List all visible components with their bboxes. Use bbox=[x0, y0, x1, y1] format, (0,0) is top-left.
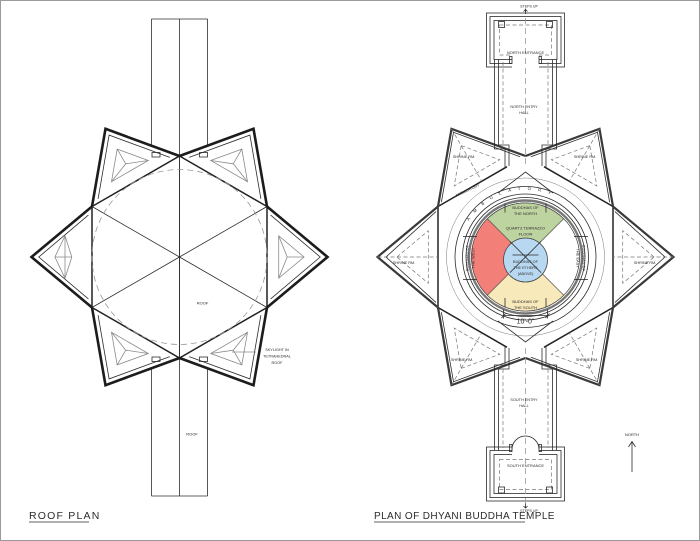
svg-text:STEPS UP: STEPS UP bbox=[520, 5, 538, 9]
buddhas-east-line2: THE EAST bbox=[576, 248, 581, 268]
buddhas-south-line2: THE SOUTH bbox=[514, 305, 537, 310]
floor-label-line2: FLOOR bbox=[519, 232, 533, 237]
south-entry-hall-line1: SOUTH ENTRY bbox=[510, 398, 538, 402]
skylight-note-line2: TETRAHEDRAL bbox=[263, 355, 291, 359]
dimension-text: 10'-0" bbox=[517, 319, 535, 326]
buddhas-ethers-line2: THE ETHERS bbox=[513, 266, 538, 270]
svg-text:ROOF PLAN: ROOF PLAN bbox=[29, 510, 100, 522]
svg-text:PLAN OF DHYANI BUDDHA TEMPLE: PLAN OF DHYANI BUDDHA TEMPLE bbox=[374, 511, 555, 522]
north-entry-hall-line2: HALL bbox=[519, 111, 529, 115]
north-arrow-label: NORTH bbox=[625, 432, 639, 437]
south-entrance-label: SOUTH ENTRANCE bbox=[507, 463, 544, 468]
skylight-note-line3: ROOF bbox=[272, 361, 284, 365]
shrine-label-se: SHRINE RM. bbox=[576, 358, 598, 362]
south-entry-hall-line2: HALL bbox=[519, 404, 529, 408]
skylight-note-line1: SKYLIGHT IN bbox=[265, 348, 289, 352]
shrine-label-ne: SHRINE RM. bbox=[574, 155, 596, 159]
architectural-drawing: ROOF ROOF SKYLIGHT IN TETRAHEDRAL ROOF R… bbox=[0, 0, 700, 541]
buddhas-north-line2: THE NORTH bbox=[514, 211, 537, 216]
floor-label-line1: QUARTZ TERRAZZO bbox=[506, 226, 545, 231]
shrine-label-sw: SHRINE RM. bbox=[451, 358, 473, 362]
buddhas-ethers-line1: BUDDHAS OF bbox=[513, 260, 539, 264]
buddhas-north-line1: BUDDHAS OF bbox=[512, 205, 539, 210]
drawing-sheet: ROOF ROOF SKYLIGHT IN TETRAHEDRAL ROOF R… bbox=[0, 0, 700, 541]
buddhas-south-line1: BUDDHAS OF bbox=[512, 299, 539, 304]
buddhas-east-line1: BUDDHAS OF bbox=[582, 245, 587, 272]
buddhas-west-line1: BUDDHAS OF bbox=[465, 244, 470, 271]
roof-label-center: ROOF bbox=[197, 301, 209, 306]
north-entrance-label: NORTH ENTRANCE bbox=[507, 50, 545, 55]
buddhas-ethers-line3: (ABOVE) bbox=[518, 272, 534, 276]
north-entry-hall-line1: NORTH ENTRY bbox=[510, 105, 538, 109]
shrine-label-e: SHRINE RM. bbox=[634, 261, 656, 265]
shrine-label-nw: SHRINE RM. bbox=[453, 155, 475, 159]
roof-label-lower: ROOF bbox=[186, 432, 198, 437]
buddhas-west-line2: THE WEST bbox=[471, 247, 476, 268]
roof-plan-title: ROOF PLAN bbox=[29, 510, 100, 522]
shrine-label-w: SHRINE RM. bbox=[393, 261, 415, 265]
temple-plan-title: PLAN OF DHYANI BUDDHA TEMPLE bbox=[374, 511, 555, 522]
